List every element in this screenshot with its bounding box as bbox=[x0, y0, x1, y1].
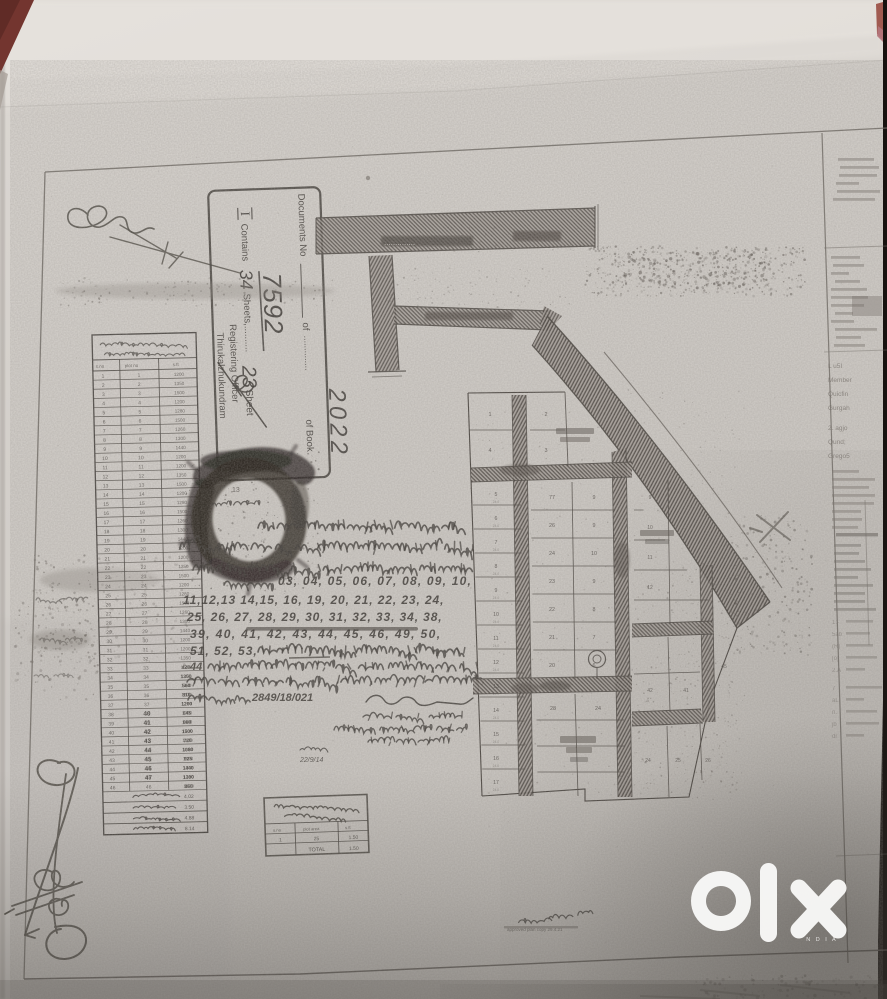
svg-text:N D I A: N D I A bbox=[806, 937, 837, 943]
